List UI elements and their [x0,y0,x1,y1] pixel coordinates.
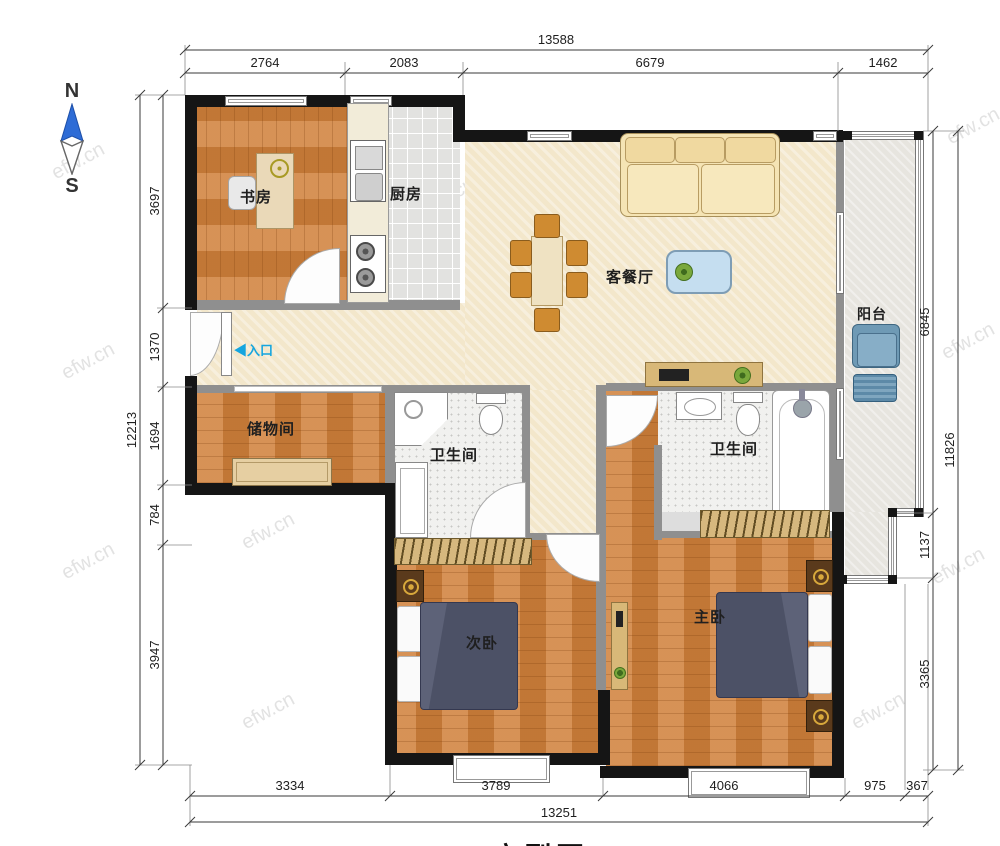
kitchen-sink [350,140,386,202]
corridor-floor [530,390,596,540]
lamp-icon [813,569,829,585]
balcony-post [888,575,897,584]
dim-bottom-total: 13251 [541,805,577,820]
living-label: 客餐厅 [606,266,654,287]
master-wardrobe [700,510,830,538]
balcony-post [838,575,847,584]
bedroom2-nightstand [396,570,424,602]
plant-icon [734,367,751,384]
wall-left-lower [185,376,197,488]
bedroom2-label: 次卧 [466,632,498,653]
pillow [808,594,832,642]
wall-master-right [832,512,844,778]
balcony-wall-top [843,131,923,140]
wall-between-bedrooms-lower [598,690,610,765]
compass-north-label: N [46,80,98,103]
dim-top-seg: 2764 [251,55,280,70]
watermark-text: efw.cn [938,318,999,365]
balcony-post [843,131,852,140]
dim-top-seg: 1462 [869,55,898,70]
basin-icon [404,400,423,419]
tv-icon [659,369,689,381]
watermark-text: efw.cn [238,508,299,555]
dim-top-seg: 2083 [390,55,419,70]
wall-storage-bath [385,390,395,485]
master-bedroom-label: 主卧 [694,606,726,627]
stove-burner [356,268,375,287]
coffee-table [666,250,732,294]
dining-chair [566,240,588,266]
master-toilet-tank [733,392,763,403]
pillow [808,646,832,694]
lamp-icon [403,579,419,595]
balcony-floor-lower [845,512,890,578]
stove-burner [356,242,375,261]
wall-hallway-masterbath [654,445,662,540]
wall-left-upper [185,95,197,310]
dim-left-seg: 784 [147,504,162,526]
dim-left-seg: 3947 [147,641,162,670]
master-bath-label: 卫生间 [710,438,758,459]
master-bath-sink [676,392,722,420]
balcony-wall-right-lower [888,508,897,584]
shared-bath-toilet [479,405,503,435]
sofa [620,133,780,217]
dining-chair [510,272,532,298]
balcony-wall-right [915,131,924,517]
dining-chair [534,214,560,238]
wall-bath-shared-top [388,385,530,393]
plant-icon [614,667,626,679]
shared-bath-label: 卫生间 [430,444,478,465]
plant-icon [675,263,693,281]
study-lamp-icon [270,159,289,178]
study-label: 书房 [240,186,272,207]
master-bed [716,592,808,698]
dining-chair [566,272,588,298]
master-nightstand [806,560,833,592]
window-study-top [225,96,307,106]
watermark-text: efw.cn [238,688,299,735]
master-nightstand [806,700,833,732]
dim-left-total: 12213 [124,412,139,448]
tv-icon [616,611,623,627]
sink-faucet-basin [355,146,383,170]
balcony-post [914,508,923,517]
watermark-text: efw.cn [58,538,119,585]
bedroom2-wardrobe [394,538,532,565]
dining-chair [510,240,532,266]
window-bedroom2-bay [453,755,550,783]
watermark-text: efw.cn [58,338,119,385]
balcony-mat [853,374,897,402]
dim-bottom-seg: 3334 [276,778,305,793]
dim-right-total: 11826 [942,432,957,467]
sink-basin [355,173,383,201]
dim-left-seg: 1370 [147,333,162,362]
dim-right-seg: 1137 [917,531,932,559]
kitchen-label: 厨房 [390,183,422,204]
entrance-door-leaf [221,312,232,376]
tub-faucet-icon [793,399,812,418]
balcony-label: 阳台 [857,304,887,324]
master-toilet [736,404,760,436]
window-balcony-divider-2 [836,388,844,460]
window-living-top-2 [813,131,837,141]
master-tv-stand [611,602,628,690]
shared-bath-toilet-tank [476,393,506,404]
window-balcony-divider-1 [836,212,844,294]
compass-needle-icon [57,103,87,175]
wall-corridor-hallway [596,385,606,540]
compass-south-label: S [46,175,98,198]
storage-door-opening [234,386,382,392]
dim-left-seg: 3697 [147,187,162,216]
floorplan-canvas: efw.cnefw.cnefw.cnefw.cnefw.cnefw.cnefw.… [0,0,1000,846]
shared-bath-vanity [395,462,428,538]
storage-cabinet [232,458,332,486]
watermark-text: efw.cn [943,103,1000,150]
dim-bottom-seg: 975 [864,778,886,793]
dim-left-seg: 1694 [147,422,162,451]
watermark-text: efw.cn [848,688,909,735]
storage-label: 储物间 [247,418,295,439]
entrance-arrow-icon: ◀ [234,343,247,358]
dim-right-seg: 3365 [917,660,932,689]
kitchen-stove [350,235,386,293]
window-living-top [527,131,572,141]
dim-bottom-seg: 367 [906,778,928,793]
balcony-post [914,131,923,140]
lamp-icon [813,709,829,725]
plan-title: 户型图 [340,836,740,846]
watermark-text: efw.cn [928,543,989,590]
tv-console [645,362,763,387]
compass: N S [46,80,98,198]
entrance-label: ◀入口 [234,340,273,359]
balcony-post [888,508,897,517]
bedroom2-bed [420,602,518,710]
balcony-armchair [852,324,900,368]
dining-chair [534,308,560,332]
dining-table [531,236,563,306]
window-master-bay [688,768,810,798]
dim-top-seg: 6679 [636,55,665,70]
dim-top-total: 13588 [538,32,574,47]
